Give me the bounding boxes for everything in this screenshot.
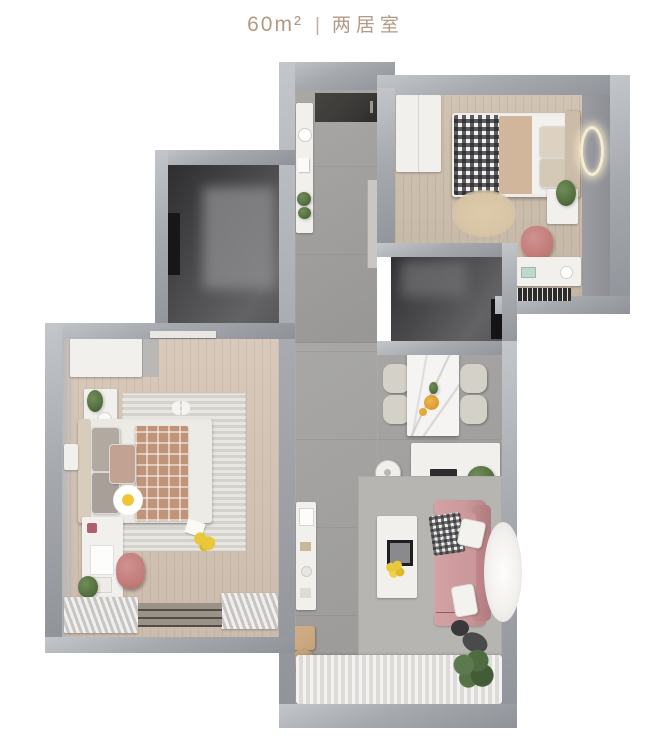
dining-chair-2: [383, 395, 410, 424]
shelf-frame: [299, 508, 314, 526]
bed-master-headboard: [78, 419, 91, 523]
wall-living-bottom: [279, 704, 517, 728]
wall-master-bottom: [45, 637, 295, 653]
bedroom-master-wall-face: [62, 339, 75, 637]
bedroom-second-wall-face: [582, 95, 610, 296]
bathroom-main-mirror: [168, 213, 180, 275]
wall-master-left: [45, 323, 62, 653]
nightstand-second-plant: [556, 180, 576, 206]
bed-flower-deco: [113, 485, 143, 515]
coffee-table-flowers: [384, 559, 407, 580]
robot-vacuum-center: [384, 469, 391, 476]
plan-title: 60m² | 两居室: [0, 10, 651, 37]
shelf-box: [300, 588, 311, 598]
wardrobe-second: [396, 95, 441, 172]
bed-master-pillow-3: [109, 444, 136, 484]
wall-bedroom-second-right: [610, 75, 630, 314]
bathroom-main-floor: [168, 165, 279, 338]
bathroom-second-floor: [391, 257, 502, 341]
entry-mat: [315, 93, 377, 122]
fruit-pineapple: [424, 395, 439, 410]
kitchen-plant-2: [298, 207, 311, 219]
desk-chair-master: [116, 553, 145, 589]
balcony-plant: [450, 648, 496, 690]
bed-second-plaid-blanket: [454, 115, 500, 195]
desk-second: [516, 257, 581, 286]
dining-chair-4: [460, 395, 487, 424]
ring-light: [580, 126, 604, 176]
bed-second-duvet: [499, 116, 534, 194]
dining-table: [407, 352, 459, 436]
wall-bathroom-second-right: [502, 243, 517, 355]
curtain-rail: [150, 331, 216, 338]
title-separator: |: [315, 15, 320, 37]
wall-corridor-bedroom-divider: [377, 88, 395, 256]
dining-chair-1: [383, 364, 410, 393]
wall-bathroom-second-bottom: [377, 341, 517, 355]
fruit-small: [419, 408, 427, 416]
desk-master-paper: [90, 545, 114, 575]
wall-bathroom-second-top: [377, 243, 517, 257]
round-rug-white: [484, 522, 522, 622]
corridor-cabinet: [367, 180, 377, 268]
wall-bedroom-second-top: [377, 75, 630, 95]
bathroom-main-light-patch: [203, 187, 275, 289]
kitchen-stand: [298, 158, 309, 172]
area-label: 60m²: [247, 13, 303, 37]
layout-label: 两居室: [332, 10, 404, 37]
rug-round-second: [452, 190, 516, 237]
desk-master-lamp: [87, 523, 97, 533]
curtain-master-right: [221, 593, 278, 629]
desk-chair-second: [521, 226, 553, 259]
shelf-book: [300, 542, 311, 551]
desk-master-plant: [78, 576, 98, 598]
slippers: [172, 401, 190, 415]
wall-bathroom-main-top: [155, 150, 295, 165]
bathroom-second-light-patch: [401, 261, 467, 297]
table-plant-sprig: [429, 382, 438, 394]
wall-shelf-living: [296, 502, 316, 610]
desk-second-cup: [560, 266, 573, 279]
curtain-master-left: [64, 597, 138, 633]
window-track: [138, 603, 222, 627]
wardrobe-master: [70, 338, 142, 377]
wardrobe-second-divider: [418, 95, 419, 172]
kitchen-bowl: [298, 128, 312, 142]
keyboard-piano: [517, 288, 571, 301]
shelf-cup: [301, 566, 312, 577]
wall-shelf-master: [64, 444, 78, 470]
wall-bathroom-main-left: [155, 150, 168, 338]
rug-flower-yellow: [192, 530, 216, 552]
coffee-table: [377, 516, 417, 598]
wardrobe-master-side: [142, 339, 159, 377]
door-handle: [370, 101, 373, 113]
dining-chair-3: [460, 364, 487, 393]
bed-second-pillow-1: [539, 126, 567, 158]
kitchen-plant-1: [297, 192, 311, 206]
desk-second-book: [521, 267, 536, 278]
nightstand-master-plant: [87, 390, 103, 412]
floor-plan: 60m² | 两居室: [0, 0, 651, 739]
